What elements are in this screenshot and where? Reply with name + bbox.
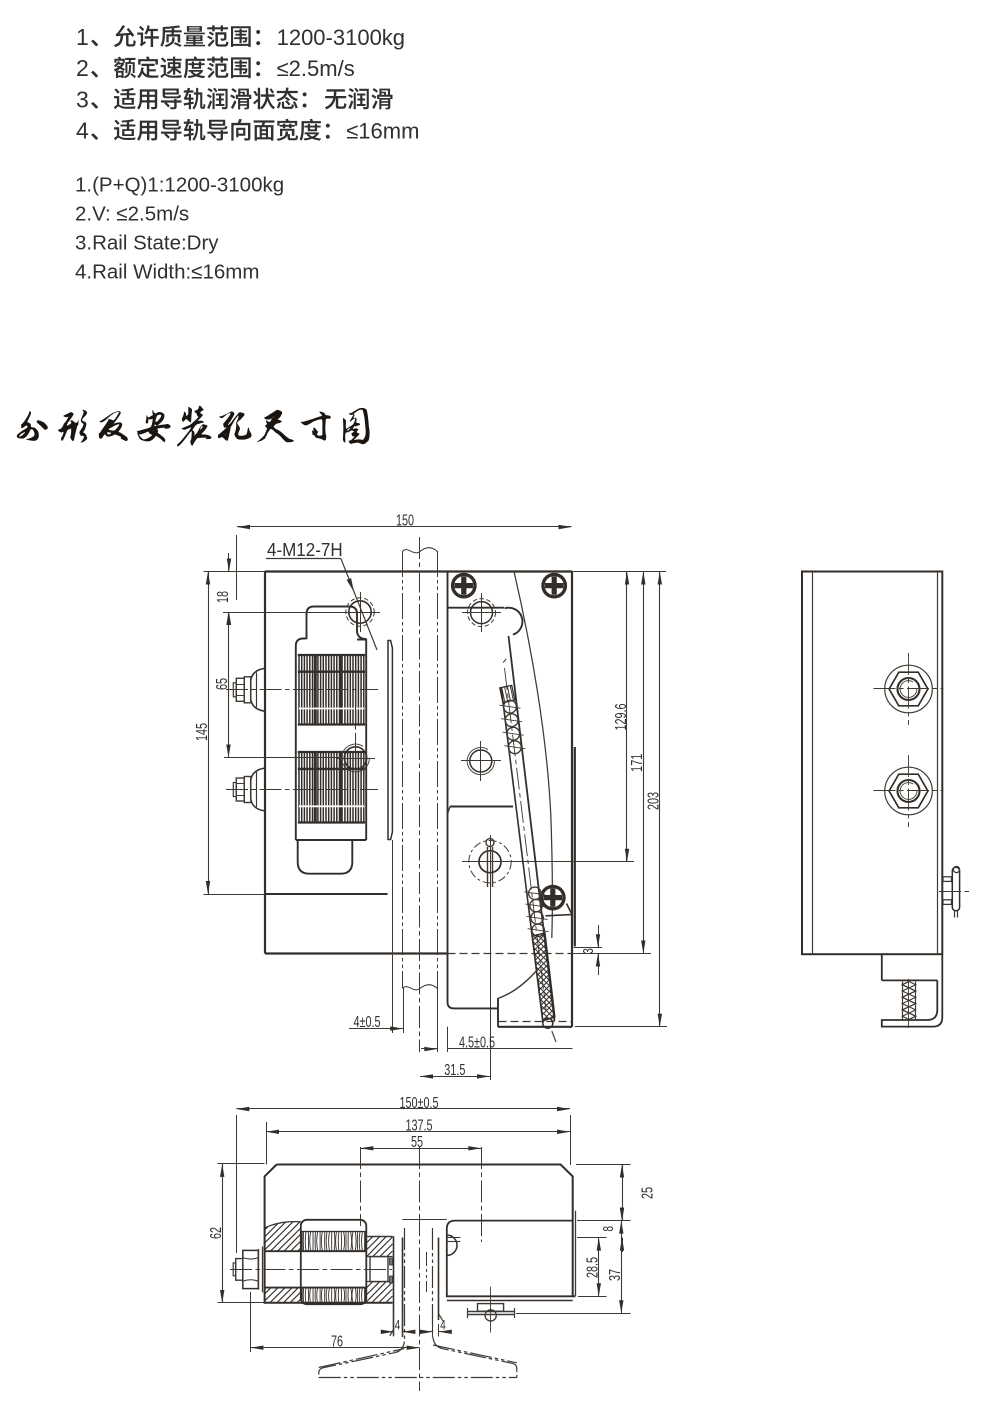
svg-text:37: 37 <box>606 1269 623 1281</box>
svg-text:≤16mm: ≤16mm <box>346 119 419 144</box>
svg-text:171: 171 <box>628 754 645 772</box>
svg-text:1: 1 <box>76 24 89 50</box>
svg-text:31.5: 31.5 <box>444 1061 465 1078</box>
svg-text:4: 4 <box>440 1317 446 1333</box>
svg-text:28.5: 28.5 <box>584 1257 601 1278</box>
svg-text:55: 55 <box>411 1133 423 1150</box>
svg-text:4.Rail Width:≤16mm: 4.Rail Width:≤16mm <box>75 261 259 284</box>
svg-text:8: 8 <box>600 1226 616 1232</box>
svg-text:137.5: 137.5 <box>405 1117 432 1134</box>
svg-text:203: 203 <box>645 792 662 810</box>
svg-text:4: 4 <box>395 1317 401 1333</box>
svg-text:4: 4 <box>76 118 89 144</box>
svg-text:76: 76 <box>331 1332 343 1349</box>
svg-text:4-M12-7H: 4-M12-7H <box>267 539 343 560</box>
svg-text:145: 145 <box>193 723 210 741</box>
svg-text:150±0.5: 150±0.5 <box>399 1094 438 1111</box>
svg-text:3: 3 <box>76 86 89 112</box>
svg-text:129.6: 129.6 <box>612 703 629 730</box>
svg-text:3.Rail State:Dry: 3.Rail State:Dry <box>75 232 219 255</box>
svg-text:25: 25 <box>638 1187 655 1199</box>
svg-text:≤2.5m/s: ≤2.5m/s <box>277 56 355 81</box>
svg-text:65: 65 <box>213 678 230 690</box>
svg-text:1200-3100kg: 1200-3100kg <box>277 25 405 50</box>
svg-text:1.(P+Q)1:1200-3100kg: 1.(P+Q)1:1200-3100kg <box>75 174 284 197</box>
svg-text:2: 2 <box>76 55 89 81</box>
svg-text:3: 3 <box>580 948 596 954</box>
svg-text:150: 150 <box>396 512 414 529</box>
svg-text:62: 62 <box>207 1227 224 1239</box>
svg-text:2.V: ≤2.5m/s: 2.V: ≤2.5m/s <box>75 203 189 226</box>
svg-text:18: 18 <box>214 591 231 603</box>
